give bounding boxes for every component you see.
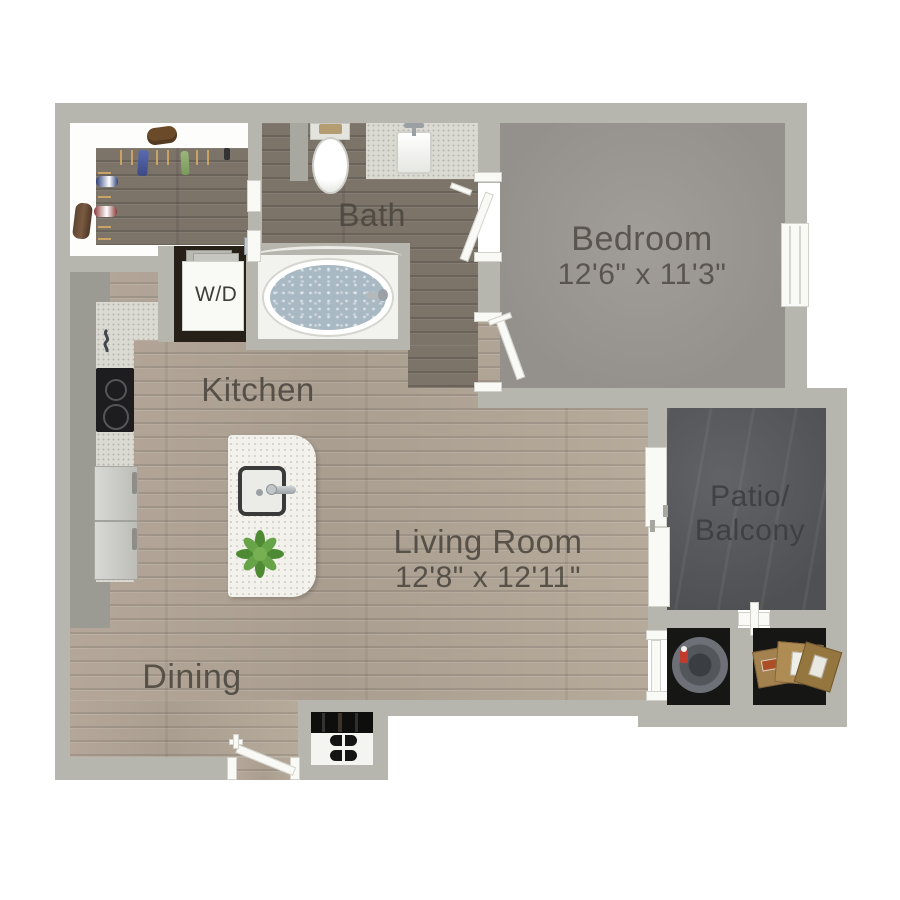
wall-living-bottom: [383, 700, 648, 716]
plant-icon: [236, 530, 284, 578]
closet-floor: [96, 148, 248, 245]
bedroom-window-mullion: [789, 226, 791, 304]
folded-clothes-icon: [94, 206, 117, 217]
wall-storage-top-r: [770, 610, 846, 628]
toilet-side-wall: [290, 123, 308, 181]
bath-label: Bath: [338, 198, 406, 234]
hanger-icon: [167, 150, 169, 165]
box-label: [808, 654, 828, 678]
shoes-icon: [330, 735, 357, 746]
living-room-label-text: Living Room: [394, 524, 583, 561]
wall-storage-top-l: [667, 610, 738, 628]
bath-label-text: Bath: [338, 197, 406, 233]
living-room-dimensions: 12'8" x 12'11": [394, 561, 583, 595]
tub-faucet-knob-icon: [378, 289, 388, 301]
hanger-icon: [207, 150, 209, 165]
door-jamb: [227, 757, 237, 780]
hanging-clothes-icon: [180, 151, 189, 175]
hanging-clothes-icon: [137, 150, 149, 177]
toilet-lid-icon: [319, 124, 342, 134]
kitchen-label: Kitchen: [201, 372, 315, 409]
living-room-label: Living Room 12'8" x 12'11": [394, 524, 583, 595]
wall-bedroom-bottom: [478, 388, 847, 408]
water-heater-cap-icon: [681, 646, 687, 652]
door-jamb: [474, 382, 502, 392]
wd-wall-stub: [158, 246, 174, 342]
toilet-icon: [312, 137, 349, 194]
hanging-clothes-icon: [224, 148, 230, 160]
patio-label-line1: Patio/: [695, 480, 805, 514]
door-jamb: [646, 630, 669, 640]
island-faucet-knob-icon: [266, 484, 277, 495]
shoes-icon: [330, 750, 357, 761]
entry-door-hinge-icon: [233, 734, 239, 749]
patio-label: Patio/ Balcony: [695, 480, 805, 547]
hanger-icon: [120, 150, 122, 165]
floor-plan: W/D: [0, 0, 900, 900]
sliding-door-handle-icon: [663, 505, 668, 517]
bedroom-window-mullion: [799, 226, 801, 304]
stove-burner-icon: [105, 379, 127, 401]
hanger-icon: [98, 196, 111, 198]
refrigerator-divider: [94, 520, 138, 522]
wall-top: [55, 103, 807, 123]
utility-door-icon: [651, 640, 661, 692]
patio-label-line2: Balcony: [695, 514, 805, 548]
wall-left: [55, 103, 70, 780]
hanger-icon: [98, 172, 111, 174]
entry-closet-rod: [311, 712, 373, 733]
wall-under-closet: [55, 256, 170, 272]
door-jamb: [474, 172, 502, 182]
hallway-floor: [408, 345, 478, 388]
door-jamb: [474, 252, 502, 262]
hanging-coat-icon: [322, 713, 325, 732]
bedroom-label-text: Bedroom: [558, 220, 727, 258]
dining-label-text: Dining: [142, 658, 241, 696]
island-sink-drain-icon: [256, 489, 263, 496]
folded-clothes-icon: [96, 176, 118, 187]
hanger-icon: [98, 238, 111, 240]
pocket-door-icon: [247, 180, 261, 212]
bedroom-dimensions: 12'6" x 11'3": [558, 258, 727, 292]
hanger-icon: [131, 150, 133, 165]
hanger-icon: [156, 150, 158, 165]
pocket-door-icon: [247, 230, 261, 262]
dining-label: Dining: [142, 658, 241, 696]
door-jamb: [646, 691, 669, 701]
hanger-icon: [196, 150, 198, 165]
wall-bedroom-left-a: [478, 103, 500, 183]
dining-floor: [70, 700, 298, 757]
hanging-coat-icon: [355, 713, 358, 732]
sliding-door-handle-icon: [650, 520, 655, 532]
wall-patio-left-a: [648, 408, 667, 447]
wall-storage-bottom: [638, 705, 847, 727]
vanity-faucet-stem-icon: [412, 127, 416, 136]
wall-bedroom-left-b: [478, 258, 500, 320]
refrigerator-handle: [132, 528, 137, 550]
sliding-door-panel-icon: [648, 527, 670, 607]
bedroom-label: Bedroom 12'6" x 11'3": [558, 220, 727, 292]
refrigerator-handle: [132, 472, 137, 494]
wall-bottom-left: [55, 757, 237, 780]
wd-label: W/D: [195, 283, 237, 307]
wall-storage-mid: [730, 628, 753, 708]
kitchen-label-text: Kitchen: [201, 371, 315, 408]
water-heater-icon: [672, 637, 728, 693]
shower-rod-icon: [252, 246, 402, 267]
vanity-sink-icon: [396, 131, 432, 174]
kitchen-faucet-icon: [98, 328, 116, 354]
hanger-icon: [98, 226, 111, 228]
hanging-coat-icon: [338, 713, 342, 732]
stove-burner-icon: [103, 404, 129, 430]
bedroom-window-icon: [781, 223, 809, 307]
